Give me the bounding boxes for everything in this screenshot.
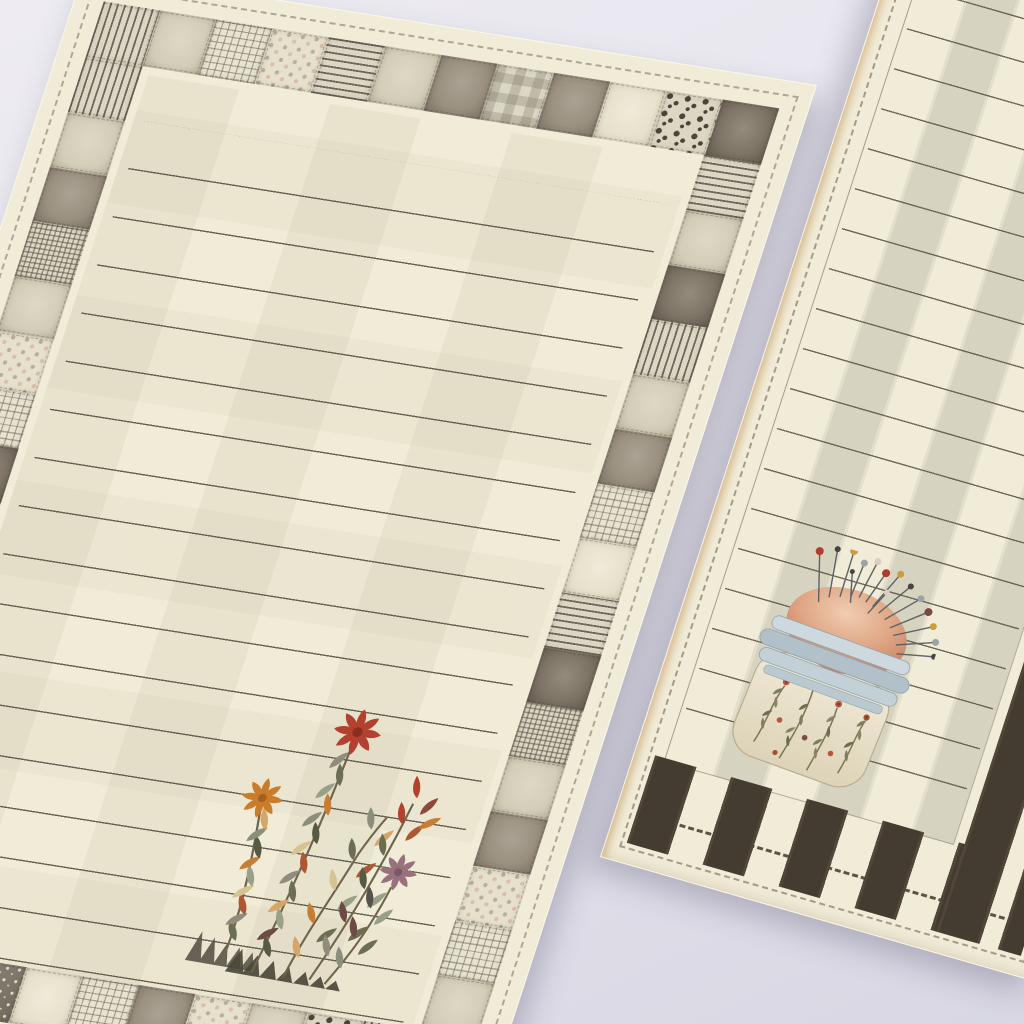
mauve-daisy: [374, 851, 423, 893]
photo-scene: [0, 0, 1024, 1024]
red-daisy: [327, 706, 388, 759]
